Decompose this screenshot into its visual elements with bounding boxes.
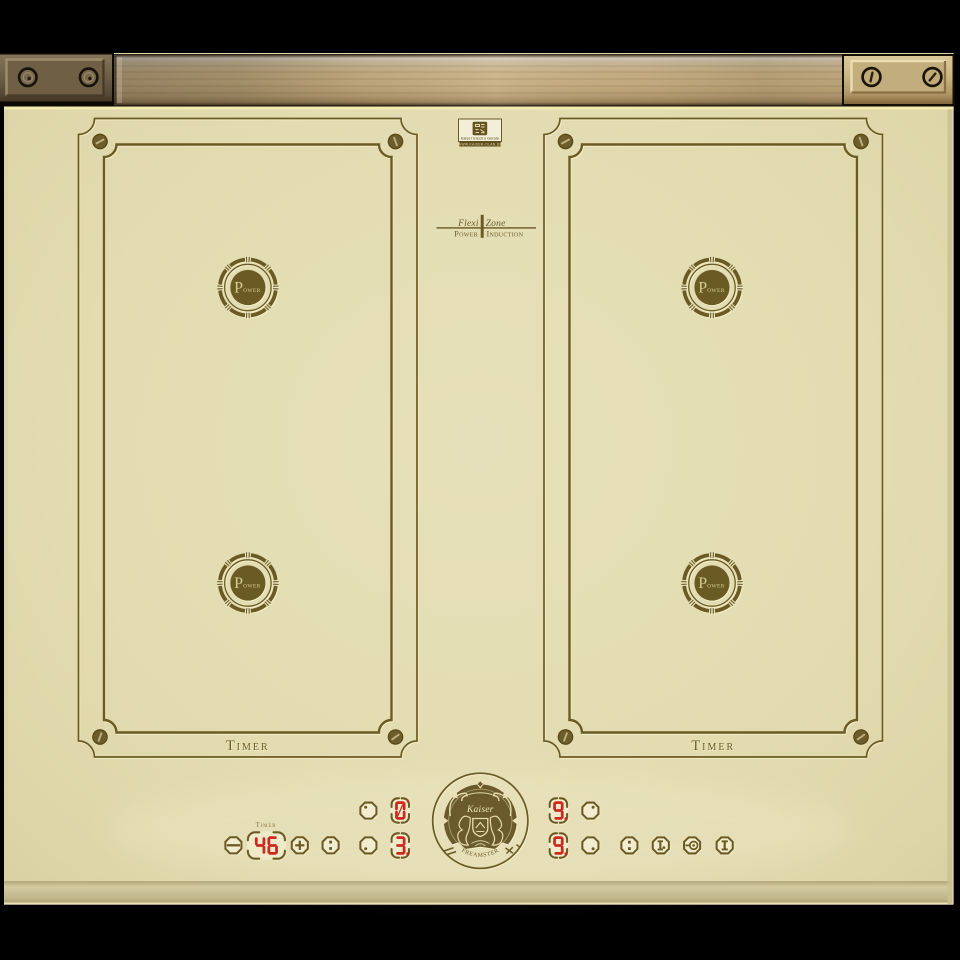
svg-text:WWW.KAISER-OLAN.DE: WWW.KAISER-OLAN.DE — [458, 142, 503, 146]
svg-text:Kaiser Electro Gerate: Kaiser Electro Gerate — [461, 136, 500, 140]
svg-text:Power: Power — [454, 230, 478, 239]
svg-text:Timer: Timer — [226, 738, 270, 754]
svg-text:Kaiser: Kaiser — [466, 805, 494, 815]
svg-text:Timer: Timer — [256, 821, 277, 829]
svg-text:Induction: Induction — [487, 230, 524, 239]
svg-text:Timer: Timer — [691, 738, 735, 754]
